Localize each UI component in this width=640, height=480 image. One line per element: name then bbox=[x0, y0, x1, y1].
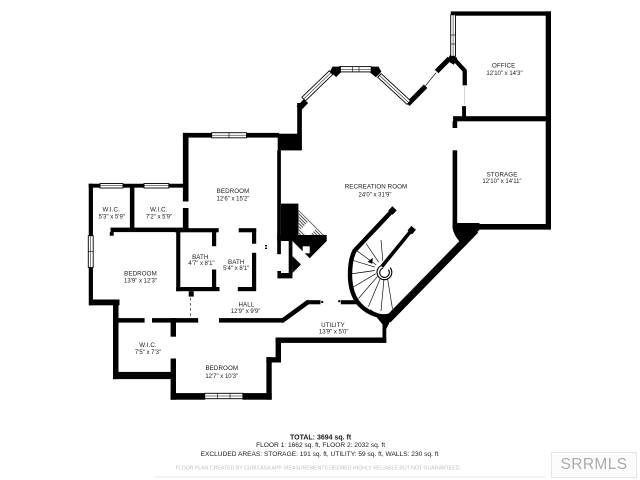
svg-text:FLOOR 1: 1662 sq. ft, FLOOR 2:: FLOOR 1: 1662 sq. ft, FLOOR 2: 2032 sq. … bbox=[256, 442, 385, 449]
svg-text:4'7" x 8'1": 4'7" x 8'1" bbox=[188, 261, 214, 267]
svg-text:5'3" x 5'9": 5'3" x 5'9" bbox=[99, 214, 125, 220]
svg-text:7'5" x 7'3": 7'5" x 7'3" bbox=[135, 350, 161, 356]
svg-text:W.I.C.: W.I.C. bbox=[102, 207, 120, 214]
svg-text:BATH: BATH bbox=[192, 254, 208, 261]
svg-text:BEDROOM: BEDROOM bbox=[124, 270, 157, 277]
svg-text:13'9" x 12'3": 13'9" x 12'3" bbox=[124, 278, 157, 284]
svg-text:12'6" x 15'2": 12'6" x 15'2" bbox=[217, 197, 250, 203]
svg-text:12'9" x 9'9": 12'9" x 9'9" bbox=[231, 309, 261, 315]
svg-text:12'7" x 10'3": 12'7" x 10'3" bbox=[205, 374, 238, 380]
svg-text:5'4" x 8'1": 5'4" x 8'1" bbox=[223, 266, 249, 272]
svg-text:BEDROOM: BEDROOM bbox=[205, 365, 238, 372]
svg-text:12'10" x 14'11": 12'10" x 14'11" bbox=[482, 179, 521, 185]
svg-text:BEDROOM: BEDROOM bbox=[217, 188, 250, 195]
svg-text:W.I.C.: W.I.C. bbox=[139, 342, 157, 349]
svg-text:RECREATION ROOM: RECREATION ROOM bbox=[345, 184, 408, 191]
svg-text:W.I.C.: W.I.C. bbox=[150, 207, 168, 214]
svg-text:FLOOR PLAN CREATED BY CUBICASA: FLOOR PLAN CREATED BY CUBICASA APP. MEAS… bbox=[176, 465, 461, 471]
svg-text:7'2" x 5'9": 7'2" x 5'9" bbox=[146, 214, 172, 220]
svg-text:TOTAL: 3694 sq. ft: TOTAL: 3694 sq. ft bbox=[290, 434, 352, 441]
svg-text:12'10" x 14'3": 12'10" x 14'3" bbox=[486, 71, 522, 77]
svg-text:HALL: HALL bbox=[238, 301, 254, 308]
svg-text:EXCLUDED AREAS: STORAGE: 191 s: EXCLUDED AREAS: STORAGE: 191 sq. ft, UTI… bbox=[201, 451, 439, 458]
svg-text:24'0" x 31'9": 24'0" x 31'9" bbox=[359, 192, 392, 198]
svg-text:UTILITY: UTILITY bbox=[321, 322, 345, 329]
svg-text:13'9" x 5'0": 13'9" x 5'0" bbox=[319, 330, 349, 336]
svg-text:OFFICE: OFFICE bbox=[492, 63, 515, 70]
svg-text:BATH: BATH bbox=[228, 259, 244, 266]
svg-text:STORAGE: STORAGE bbox=[487, 172, 518, 179]
